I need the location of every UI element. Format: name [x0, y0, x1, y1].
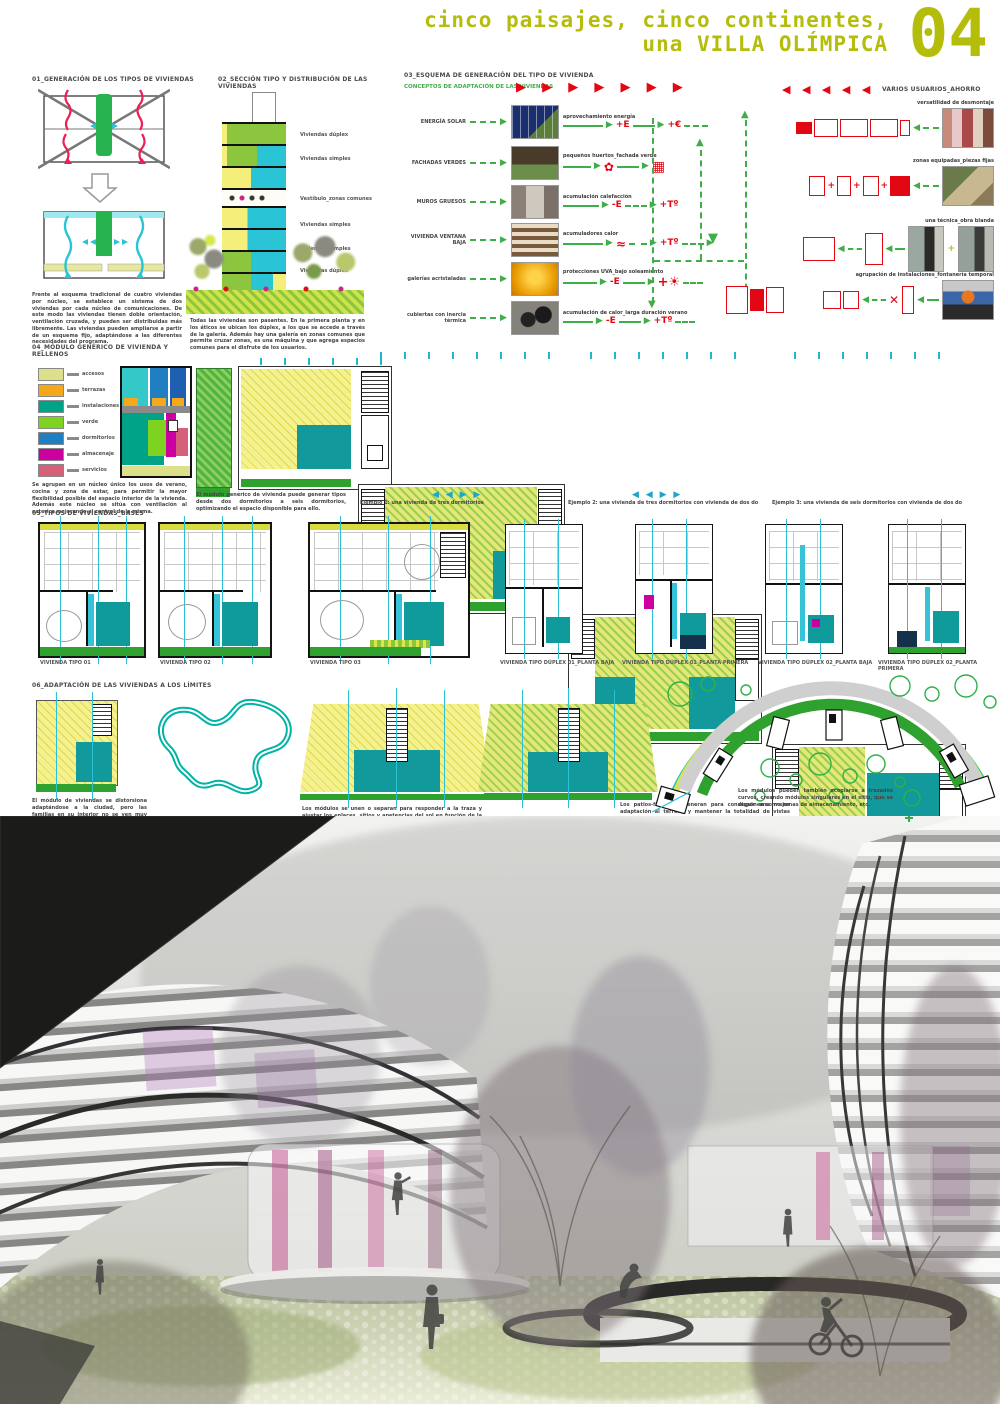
- section-01-caption: Frente al esquema tradicional de cuatro …: [32, 292, 182, 346]
- adapted-plan-c: [478, 700, 658, 800]
- plan-label-5: VIVIENDA TIPO DÚPLEX 02_PLANTA BAJA: [758, 660, 872, 666]
- generic-module-diagram: [120, 366, 192, 478]
- red-furniture-icons: [803, 237, 835, 261]
- housing-plan-tipo-02: [158, 522, 272, 658]
- photo-person: [942, 280, 994, 320]
- flow-symbol: -E: [610, 278, 620, 287]
- flow-row-label: VIVIENDA VENTANA BAJA: [400, 234, 466, 246]
- flow-row: ENERGÍA SOLAR ▶ aprovechamiento energía …: [400, 104, 750, 140]
- legend-item: servicios: [38, 462, 123, 478]
- legend-item: dormitorios: [38, 430, 123, 446]
- example-plan-green-band: [196, 368, 232, 488]
- flow-symbol: +Tº: [660, 239, 679, 248]
- panel-title-line1: cinco paisajes, cinco continentes,: [424, 8, 888, 32]
- photo-kitchen: [942, 166, 994, 206]
- adapted-plan-b: [300, 700, 492, 800]
- floor-label: Vestíbulo_zonas comunes: [300, 196, 372, 202]
- organic-loop-diagram: [148, 692, 298, 797]
- legend-swatch: [38, 416, 64, 429]
- section-02-caption: Todas las viviendas son pasantes. En la …: [190, 318, 365, 352]
- plan-label-2: VIVIENDA TIPO 03: [310, 660, 361, 666]
- legend-swatch: [38, 432, 64, 445]
- flow-row-label: MUROS GRUESOS: [400, 199, 466, 205]
- tree-right: [288, 228, 362, 290]
- flow-symbol: -E: [606, 317, 616, 326]
- plan-label-1: VIVIENDA TIPO 02: [160, 660, 211, 666]
- section-06-caption-d: Los módulos pueden también acoplarse a t…: [738, 788, 893, 808]
- legend-item: terrazas: [38, 382, 123, 398]
- legend-item: almacenaje: [38, 446, 123, 462]
- red-furniture-icons: [823, 291, 859, 309]
- plan-label-0: VIVIENDA TIPO 01: [40, 660, 91, 666]
- plan-label-6: VIVIENDA TIPO DÚPLEX 02_PLANTA PRIMERA: [878, 660, 1000, 672]
- floor-label: Viviendas simples: [300, 156, 351, 162]
- section-04-title: 04_MÓDULO GENÉRICO DE VIVIENDA Y RELLENO…: [32, 344, 192, 358]
- flow-row-label: galerías acristaladas: [400, 276, 466, 282]
- photo-wardrobe: [942, 108, 994, 148]
- legend-label: terrazas: [82, 387, 105, 393]
- rendering-scene: [0, 816, 1000, 1404]
- photo-solar-panels: [511, 105, 559, 139]
- flow-row: MUROS GRUESOS ▶ acumulación calefacción …: [400, 184, 750, 220]
- red-plan-cluster: [726, 286, 784, 314]
- legend-label: almacenaje: [82, 451, 114, 457]
- flow-row-label: agrupación de instalaciones_fontanería t…: [856, 272, 994, 278]
- legend-swatch: [38, 400, 64, 413]
- flow-row: galerías acristaladas ▶ protecciones UVA…: [400, 258, 750, 300]
- legend-swatch: [38, 464, 64, 477]
- legend-item: accesos: [38, 366, 123, 382]
- housing-plan-duplex02-baja: [765, 524, 843, 654]
- flow-row-right: zonas equipadas_piezas fijas + + + ◀: [732, 158, 994, 206]
- red-arrows-left: ◀ ◀ ◀ ◀ ◀: [782, 83, 874, 96]
- plan-ticks: [568, 352, 758, 359]
- section-shaft: [252, 92, 276, 124]
- legend-swatch: [38, 448, 64, 461]
- flow-symbol: ✿: [604, 161, 614, 173]
- legend-label: instalaciones: [82, 403, 119, 409]
- teal-arrows: ◀ ◀ ▶ ▶: [432, 490, 482, 500]
- red-plan-icon: [865, 233, 883, 265]
- flow-row-tag: pequeños huertos_fachada verde: [563, 153, 665, 159]
- flow-connector: [652, 118, 654, 303]
- red-furniture-icons: + + +: [809, 176, 910, 196]
- diagram-two-dwellings-scheme: [38, 206, 170, 284]
- plan-label-3: VIVIENDA TIPO DÚPLEX 01_PLANTA BAJA: [500, 660, 614, 666]
- example-caption-2: Ejemplo 2: una vivienda de tres dormitor…: [568, 500, 758, 507]
- red-arrows-right: ▶ ▶ ▶ ▶ ▶ ▶ ▶: [516, 80, 689, 95]
- section-06-title: 06_ADAPTACIÓN DE LAS VIVIENDAS A LOS LÍM…: [32, 682, 252, 689]
- photo-kitchen-wall: [958, 226, 994, 272]
- flow-connector: [654, 260, 744, 262]
- photo-green-facade: [511, 146, 559, 180]
- flow-row-label: una técnica_obra blanda: [925, 218, 994, 224]
- legend-item: verde: [38, 414, 123, 430]
- flow-row-tag: acumulación de calor_larga duración vera…: [563, 310, 696, 316]
- example-plan-1: [238, 366, 392, 490]
- floor-label: Viviendas dúplex: [300, 132, 348, 138]
- example-caption-3: Ejemplo 3: una vivienda de seis dormitor…: [772, 500, 962, 507]
- flow-row-label: zonas equipadas_piezas fijas: [913, 158, 994, 164]
- flow-row-right: versatilidad de desmontaje ◀: [732, 100, 994, 148]
- flow-row-tag: protecciones UVA_bajo soleamiento: [563, 269, 703, 275]
- flow-row-label: cubiertas con inercia térmica: [400, 312, 466, 324]
- legend-label: servicios: [82, 467, 107, 473]
- photo-shading-fabric: [511, 262, 559, 296]
- housing-plan-tipo-01: [38, 522, 146, 658]
- housing-plan-duplex01-primera: [635, 524, 713, 654]
- plan-ticks: [358, 352, 558, 359]
- flow-row-tag: aprovechamiento energía: [563, 114, 708, 120]
- legend-label: accesos: [82, 371, 104, 377]
- photo-louvers: [511, 223, 559, 257]
- ground-hatch: [186, 290, 364, 314]
- flow-row: FACHADAS VERDES ▶ pequeños huertos_facha…: [400, 142, 750, 184]
- down-arrow-icon: [82, 172, 118, 204]
- flow-row-tag: acumuladores calor: [563, 231, 714, 237]
- module-legend: accesos terrazas instalaciones verde dor…: [38, 366, 123, 478]
- plan-label-4: VIVIENDA TIPO DÚPLEX 01_PLANTA PRIMERA: [622, 660, 748, 666]
- panel-header: cinco paisajes, cinco continentes, una V…: [424, 8, 888, 56]
- flow-row-label: ENERGÍA SOLAR: [400, 119, 466, 125]
- building-section-tower: [222, 122, 286, 296]
- plan-ticks: [238, 358, 388, 365]
- section-03-title: 03_ESQUEMA DE GENERACIÓN DEL TIPO DE VIV…: [404, 72, 624, 79]
- diagram-four-dwellings-crossed: [38, 88, 170, 170]
- flow-connector: [700, 150, 702, 260]
- adapted-plan-small: [36, 700, 116, 792]
- flow-symbol: +€: [667, 121, 681, 130]
- housing-plan-tipo-03: [308, 522, 470, 658]
- photo-narrow-street: [511, 185, 559, 219]
- flow-row-right: una técnica_obra blanda ◀ ◀ +: [732, 218, 994, 272]
- panel-number: 04: [909, 4, 988, 63]
- panel-title-line2: una VILLA OLÍMPICA: [424, 32, 888, 56]
- housing-plan-duplex02-primera: [888, 524, 966, 654]
- photo-bathroom: [908, 226, 944, 272]
- flow-row: VIVIENDA VENTANA BAJA ▶ acumuladores cal…: [400, 222, 750, 258]
- legend-swatch: [38, 368, 64, 381]
- teal-arrows: ◀ ◀ ▶ ▶: [632, 490, 682, 500]
- flow-symbol: +Tº: [660, 201, 679, 210]
- example-caption-1: Ejemplo 1: una vivienda de tres dormitor…: [360, 500, 520, 507]
- flow-symbol: +☀: [658, 276, 681, 289]
- flow-symbol: +Tº: [654, 317, 673, 326]
- section-01-title: 01_GENERACIÓN DE LOS TIPOS DE VIVIENDAS: [32, 76, 202, 83]
- section-05-title: 05_TIPOS DE VIVIENDAS_BASES: [32, 510, 232, 517]
- section-03-right-title: VARIOS USUARIOS_AHORRO: [882, 86, 997, 93]
- red-furniture-icons: [796, 119, 910, 137]
- legend-label: verde: [82, 419, 98, 425]
- flow-row: cubiertas con inercia térmica ▶ acumulac…: [400, 298, 750, 338]
- flow-row-label: versatilidad de desmontaje: [917, 100, 994, 106]
- housing-plan-duplex01-baja: [505, 524, 583, 654]
- section-02-title: 02_SECCIÓN TIPO Y DISTRIBUCIÓN DE LAS VI…: [218, 76, 368, 90]
- legend-label: dormitorios: [82, 435, 115, 441]
- flow-symbol: +E: [616, 121, 630, 130]
- flow-symbol: ≈: [616, 238, 626, 250]
- legend-swatch: [38, 384, 64, 397]
- plan-ticks: [772, 352, 962, 359]
- competition-panel: cinco paisajes, cinco continentes, una V…: [0, 0, 1000, 1404]
- tree-left: [186, 228, 226, 290]
- flow-row-label: FACHADAS VERDES: [400, 160, 466, 166]
- architectural-rendering: [0, 816, 1000, 1404]
- legend-item: instalaciones: [38, 398, 123, 414]
- flow-symbol: -E: [612, 201, 622, 210]
- photo-thermal-mass: [511, 301, 559, 335]
